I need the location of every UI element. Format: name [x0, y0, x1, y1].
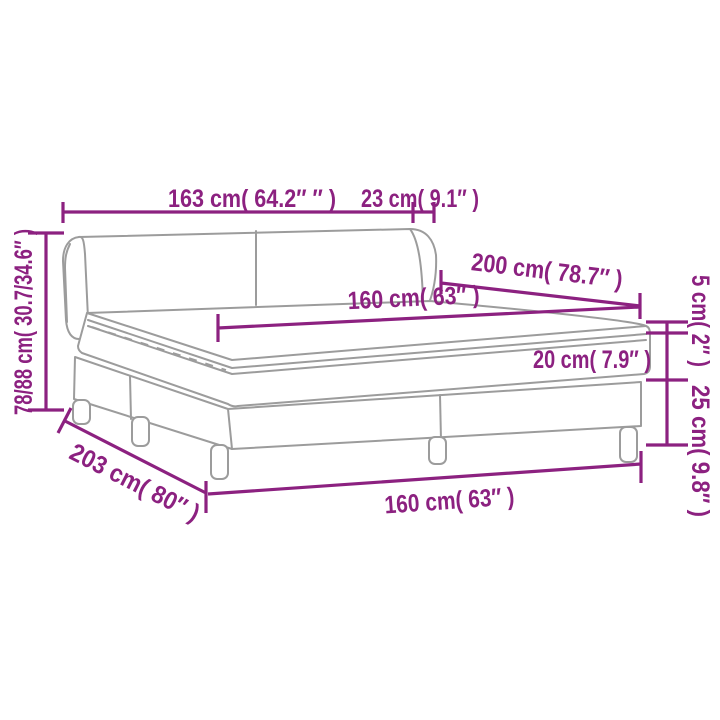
box-spring-seam-left — [130, 376, 131, 419]
dim-line — [646, 322, 688, 445]
dim-base-width: 160 cm( 63″ ) — [208, 451, 641, 520]
dim-height-bracket: 5 cm( 2″ ) 25 cm( 9.8″ ) — [646, 275, 714, 517]
box-spring-seam-front — [440, 395, 441, 440]
bed-leg — [73, 400, 90, 424]
bed-dimension-diagram: 163 cm( 64.2″ ″ ) 23 cm( 9.1″ ) 200 cm( … — [0, 0, 720, 720]
bed-leg — [132, 417, 149, 446]
base-height-label: 25 cm( 9.8″ ) — [686, 385, 714, 517]
bed-length-label: 200 cm( 78.7″ ) — [470, 248, 624, 294]
mattress-thickness-label: 20 cm( 7.9″ ) — [533, 346, 651, 374]
dim-headboard-side-depth: 23 cm( 9.1″ ) — [361, 185, 479, 223]
bed-leg — [620, 427, 637, 462]
headboard-width-label: 163 cm( 64.2″ ″ ) — [168, 185, 336, 213]
bed-leg — [211, 445, 228, 479]
dim-overall-height: 78/88 cm( 30.7/34.6″ ) — [10, 229, 64, 415]
topper-thickness-label: 5 cm( 2″ ) — [686, 275, 714, 367]
bed-leg — [429, 437, 446, 464]
base-width-label: 160 cm( 63″ ) — [384, 483, 516, 520]
dim-line — [208, 451, 641, 494]
headboard-side-depth-label: 23 cm( 9.1″ ) — [361, 185, 479, 213]
overall-height-label: 78/88 cm( 30.7/34.6″ ) — [10, 229, 38, 415]
diagram-canvas: 163 cm( 64.2″ ″ ) 23 cm( 9.1″ ) 200 cm( … — [0, 0, 720, 720]
